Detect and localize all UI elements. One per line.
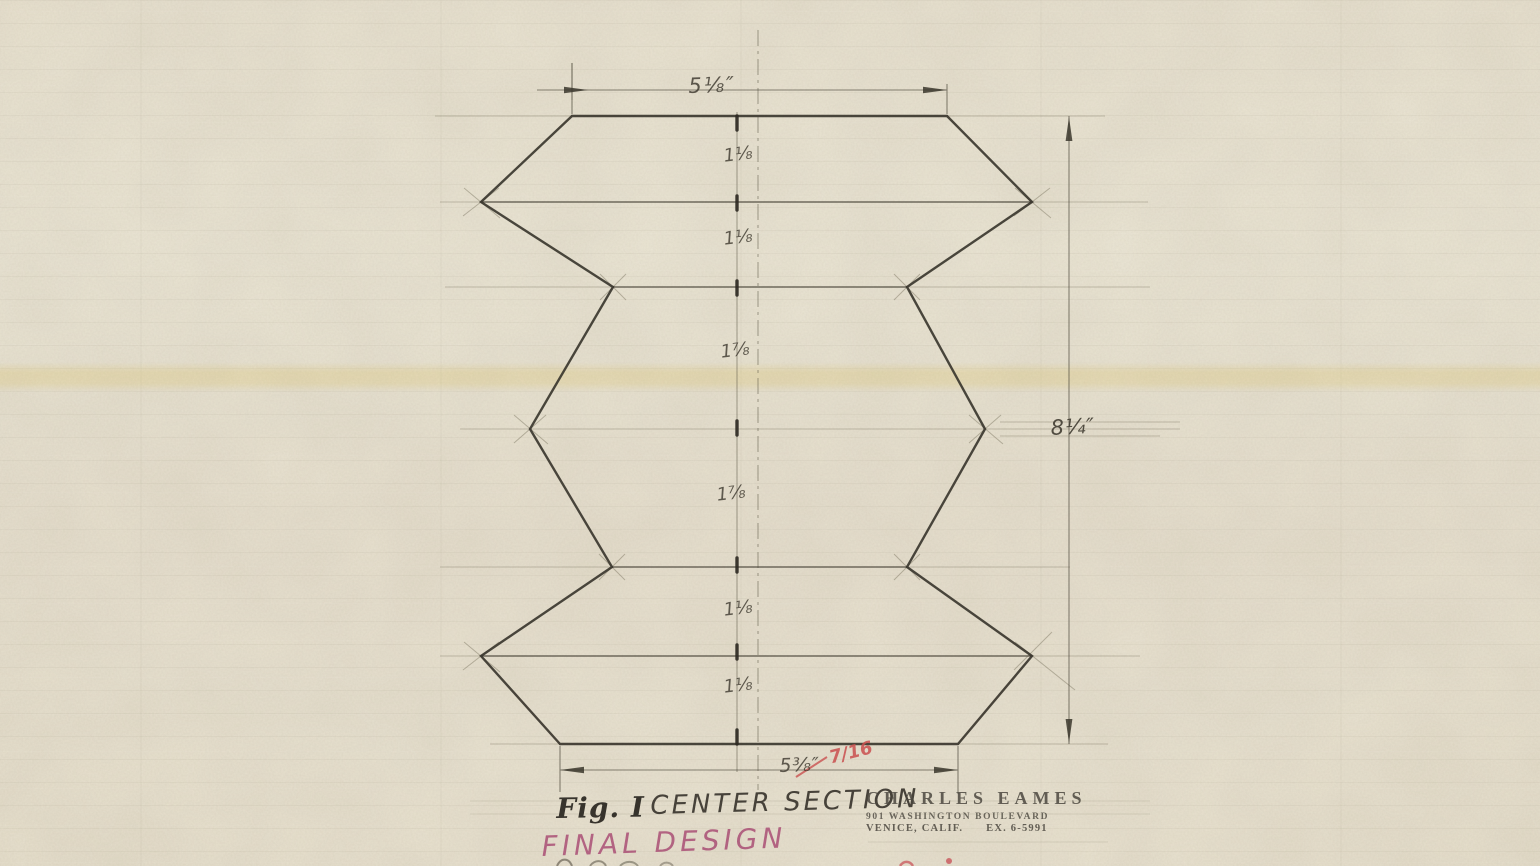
dimension-arrowheads bbox=[560, 87, 1072, 773]
stamp-city-phone: VENICE, CALIF. EX. 6-5991 bbox=[866, 823, 1087, 834]
section-drawing-linework bbox=[0, 0, 1540, 866]
stamp-address: 901 WASHINGTON BOULEVARD bbox=[866, 812, 1087, 822]
dimension-top-label: 5⅛″ bbox=[688, 72, 736, 98]
dimension-right-label: 8¼″ bbox=[1050, 414, 1096, 440]
figure-number-label: Fig. I bbox=[556, 790, 645, 825]
office-stamp: CHARLES EAMES 901 WASHINGTON BOULEVARD V… bbox=[866, 788, 1087, 834]
section-outline bbox=[481, 116, 1032, 744]
dimension-bottom-label: 5⅜″ bbox=[779, 754, 820, 777]
drawing-sheet: 5⅛″ 1⅛ 1⅛ 1⅞ 1⅞ 1⅛ 1⅛ 8¼″ 5⅜″ 7/16 Fig. … bbox=[0, 0, 1540, 866]
stamp-name: CHARLES EAMES bbox=[866, 788, 1087, 809]
